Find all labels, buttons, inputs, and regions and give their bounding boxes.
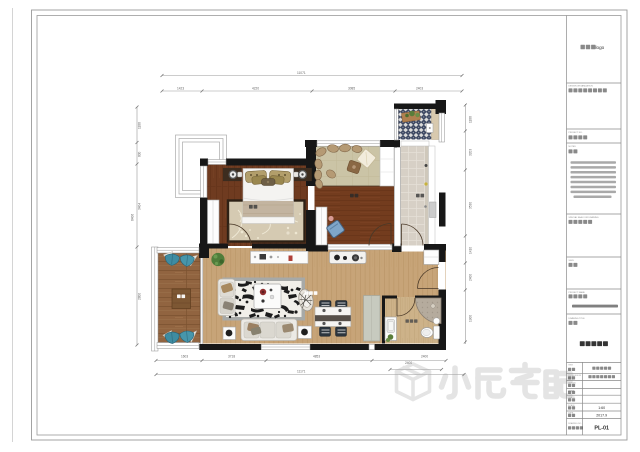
svg-text:11171: 11171: [297, 370, 306, 374]
svg-text:2800: 2800: [138, 293, 142, 300]
svg-text:3718: 3718: [228, 355, 235, 359]
svg-text:1603: 1603: [181, 355, 188, 359]
svg-text:2400: 2400: [405, 361, 412, 365]
svg-text:1423: 1423: [177, 87, 184, 91]
svg-text:DRAWING NO.: DRAWING NO.: [568, 422, 582, 425]
svg-text:3085: 3085: [348, 87, 355, 91]
svg-text:8406: 8406: [131, 214, 135, 221]
svg-text:800: 800: [138, 151, 142, 157]
svg-text:1188: 1188: [138, 122, 142, 129]
svg-text:1188: 1188: [469, 116, 473, 123]
svg-text:4853: 4853: [313, 355, 320, 359]
svg-text:DESIGN ORGANIZATION: DESIGN ORGANIZATION: [569, 85, 594, 88]
svg-text:3404: 3404: [138, 203, 142, 210]
svg-text:ITEM: ITEM: [568, 365, 573, 367]
svg-text:logo: logo: [596, 45, 605, 50]
svg-text:1900: 1900: [469, 315, 473, 322]
svg-text:2400: 2400: [469, 274, 473, 281]
svg-text:2017.9: 2017.9: [596, 414, 607, 418]
svg-text:3203: 3203: [469, 149, 473, 156]
svg-text:NOTES: NOTES: [569, 146, 577, 148]
svg-text:DRAWING TITLE: DRAWING TITLE: [569, 317, 586, 320]
svg-text:2400: 2400: [421, 355, 428, 359]
svg-text:11071: 11071: [297, 71, 306, 75]
svg-text:PL-01: PL-01: [594, 426, 609, 432]
svg-text:PROJECT NAME: PROJECT NAME: [569, 291, 586, 294]
svg-text:PROJECT NO.: PROJECT NO.: [569, 132, 583, 134]
svg-text:SPECIAL SEAL FOR DRAWING: SPECIAL SEAL FOR DRAWING: [569, 216, 599, 219]
svg-text:1:60: 1:60: [598, 406, 605, 410]
svg-text:2403: 2403: [416, 87, 423, 91]
svg-text:SIGN: SIGN: [569, 260, 575, 262]
svg-text:4220: 4220: [252, 87, 259, 91]
svg-text:1410: 1410: [469, 247, 473, 254]
svg-text:3530: 3530: [469, 202, 473, 209]
